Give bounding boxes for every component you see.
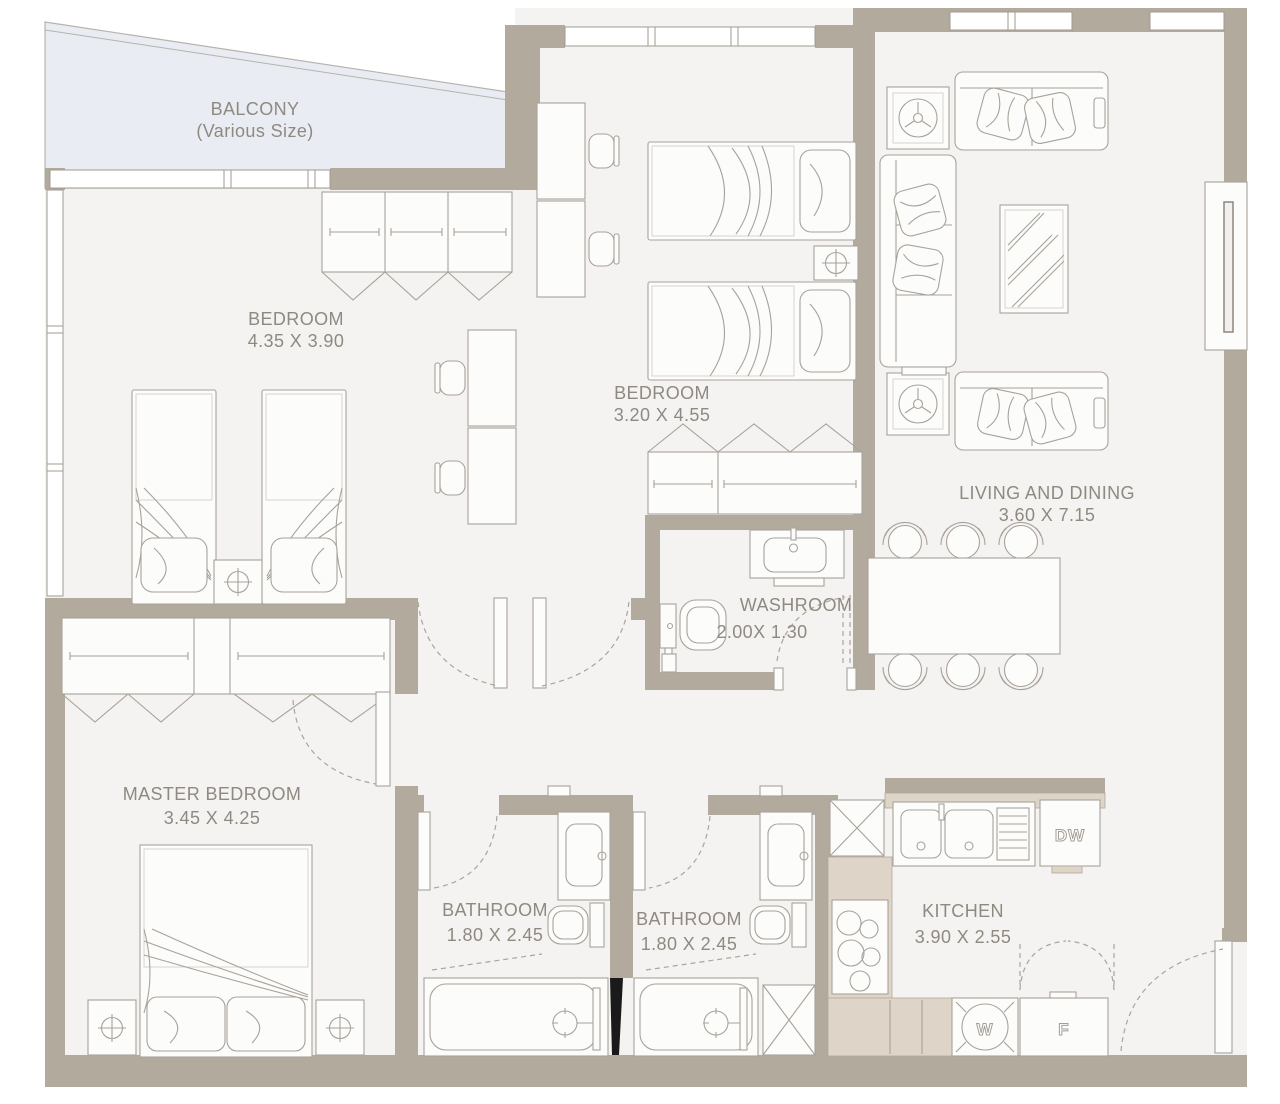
bedroom1-label: BEDROOM: [248, 309, 344, 329]
side-table-lamp-1: [887, 87, 949, 149]
dishwasher: DW: [1040, 800, 1100, 873]
bathroom2-bathtub: [634, 978, 758, 1056]
bedroom2-door: [533, 598, 546, 688]
fridge-label: F: [1058, 1020, 1069, 1039]
sofa-bottom: [955, 372, 1108, 450]
kitchen-size: 3.90 X 2.55: [915, 927, 1011, 947]
dishwasher-label: DW: [1055, 826, 1085, 845]
side-table-lamp-2: [887, 373, 949, 435]
master-nightstand-left: [88, 1000, 136, 1055]
master-bed: [140, 845, 312, 1057]
bedroom2-nightstand: [814, 246, 858, 280]
washer-label: W: [976, 1020, 993, 1039]
window-bedroom2-top: [565, 27, 815, 46]
balcony-label: BALCONY: [211, 99, 300, 119]
coffee-table: [1000, 205, 1068, 313]
bedroom1-door: [494, 598, 507, 688]
master-door: [376, 692, 390, 786]
master-nightstand-right: [316, 1000, 364, 1055]
bathroom1-bathtub: [424, 978, 608, 1056]
washroom-size: 2.00X 1.30: [716, 622, 807, 642]
floorplan-drawing: DW W F: [0, 0, 1280, 1104]
balcony-size: (Various Size): [196, 121, 313, 141]
master-label: MASTER BEDROOM: [123, 784, 302, 804]
bedroom2-label: BEDROOM: [614, 383, 710, 403]
kitchen-stove: [832, 900, 888, 994]
tv-unit: [1205, 182, 1247, 350]
bedroom1-bed-2: [262, 390, 346, 604]
bathroom1-size: 1.80 X 2.45: [447, 925, 543, 945]
washroom-sink: [750, 528, 844, 586]
bathroom2-sink: [760, 812, 812, 900]
washing-machine: W: [952, 998, 1018, 1056]
sofa-top: [955, 72, 1108, 150]
bathroom1-toilet: [548, 903, 604, 947]
kitchen-sink: [893, 802, 1035, 866]
bedroom1-size: 4.35 X 3.90: [248, 331, 344, 351]
dining-set: [868, 522, 1060, 689]
bedroom2-bed-1: [648, 142, 856, 240]
entry-door: [1215, 941, 1232, 1053]
bathroom1-sink: [558, 812, 610, 900]
kitchen-label: KITCHEN: [922, 901, 1004, 921]
bathroom1-label: BATHROOM: [442, 900, 548, 920]
fridge: F: [1020, 992, 1108, 1056]
bathroom2-toilet: [750, 903, 806, 947]
bedroom1-bed-1: [132, 390, 216, 604]
living-size: 3.60 X 7.15: [999, 505, 1095, 525]
window-bedroom1-left: [47, 190, 63, 596]
bathroom2-door: [633, 812, 645, 890]
service-shaft-bathroom: [763, 985, 815, 1055]
service-shaft-kitchen: [830, 800, 884, 856]
sofa-left: [880, 155, 956, 375]
bedroom2-bed-2: [648, 282, 856, 380]
window-living-top-2: [1150, 12, 1224, 30]
tv-icon: [1224, 202, 1233, 332]
bedroom2-size: 3.20 X 4.55: [614, 405, 710, 425]
washroom-label: WASHROOM: [740, 595, 853, 615]
bathroom2-label: BATHROOM: [636, 909, 742, 929]
floorplan: DW W F: [0, 0, 1280, 1104]
bathroom2-size: 1.80 X 2.45: [641, 934, 737, 954]
dining-table: [868, 558, 1060, 654]
master-size: 3.45 X 4.25: [164, 808, 260, 828]
bathroom1-door: [418, 812, 430, 890]
window-bedroom1-top: [50, 170, 330, 188]
bedroom1-nightstand: [214, 560, 262, 604]
living-label: LIVING AND DINING: [959, 483, 1135, 503]
